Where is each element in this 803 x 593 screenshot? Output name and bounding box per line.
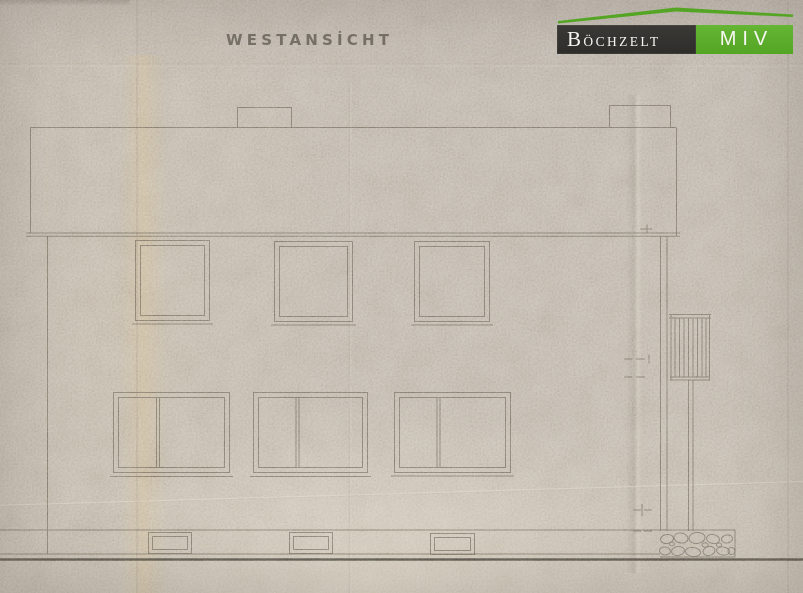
basement-window-2 [290, 533, 333, 554]
paper-crease-right [626, 95, 642, 573]
paper-crease-bottom [0, 481, 803, 507]
paper-edge-right [787, 0, 789, 593]
logo-brand-initial: B [567, 27, 583, 51]
paper-background [0, 0, 803, 593]
level-marks [624, 225, 652, 532]
scanned-blueprint-page: WESTANSİCHT BÖCHZELT MIV [0, 0, 803, 593]
elevation-drawing [0, 0, 803, 593]
wall-outline [48, 236, 668, 554]
balcony-railing [669, 315, 711, 381]
paper-crease-center [348, 82, 352, 593]
scan-vignette [0, 0, 803, 593]
scan-edge-smudge [0, 0, 130, 6]
plinth-band [0, 530, 735, 554]
company-logo: BÖCHZELT MIV [548, 0, 803, 64]
basement-window-1 [149, 533, 192, 554]
logo-brand-plate: BÖCHZELT [557, 25, 696, 54]
upper-window-1 [132, 241, 213, 325]
paper-crease-left-line [136, 0, 138, 593]
basement-window-3 [431, 534, 475, 555]
foundation-stones [659, 530, 735, 557]
lower-window-2 [250, 393, 371, 477]
chimney-right [610, 106, 671, 128]
paper-grain-texture [0, 0, 803, 593]
upper-window-2 [271, 242, 356, 326]
chimney-left [238, 108, 292, 128]
paper-fold-left [120, 55, 166, 593]
lower-window-3 [391, 393, 514, 477]
lower-window-1 [110, 393, 233, 477]
roof-parapet [26, 128, 680, 237]
logo-brand-rest: ÖCHZELT [583, 34, 660, 49]
drawing-title: WESTANSİCHT [226, 31, 393, 49]
downpipe [689, 380, 694, 531]
upper-window-3 [411, 242, 493, 326]
logo-division-plate: MIV [696, 25, 793, 54]
